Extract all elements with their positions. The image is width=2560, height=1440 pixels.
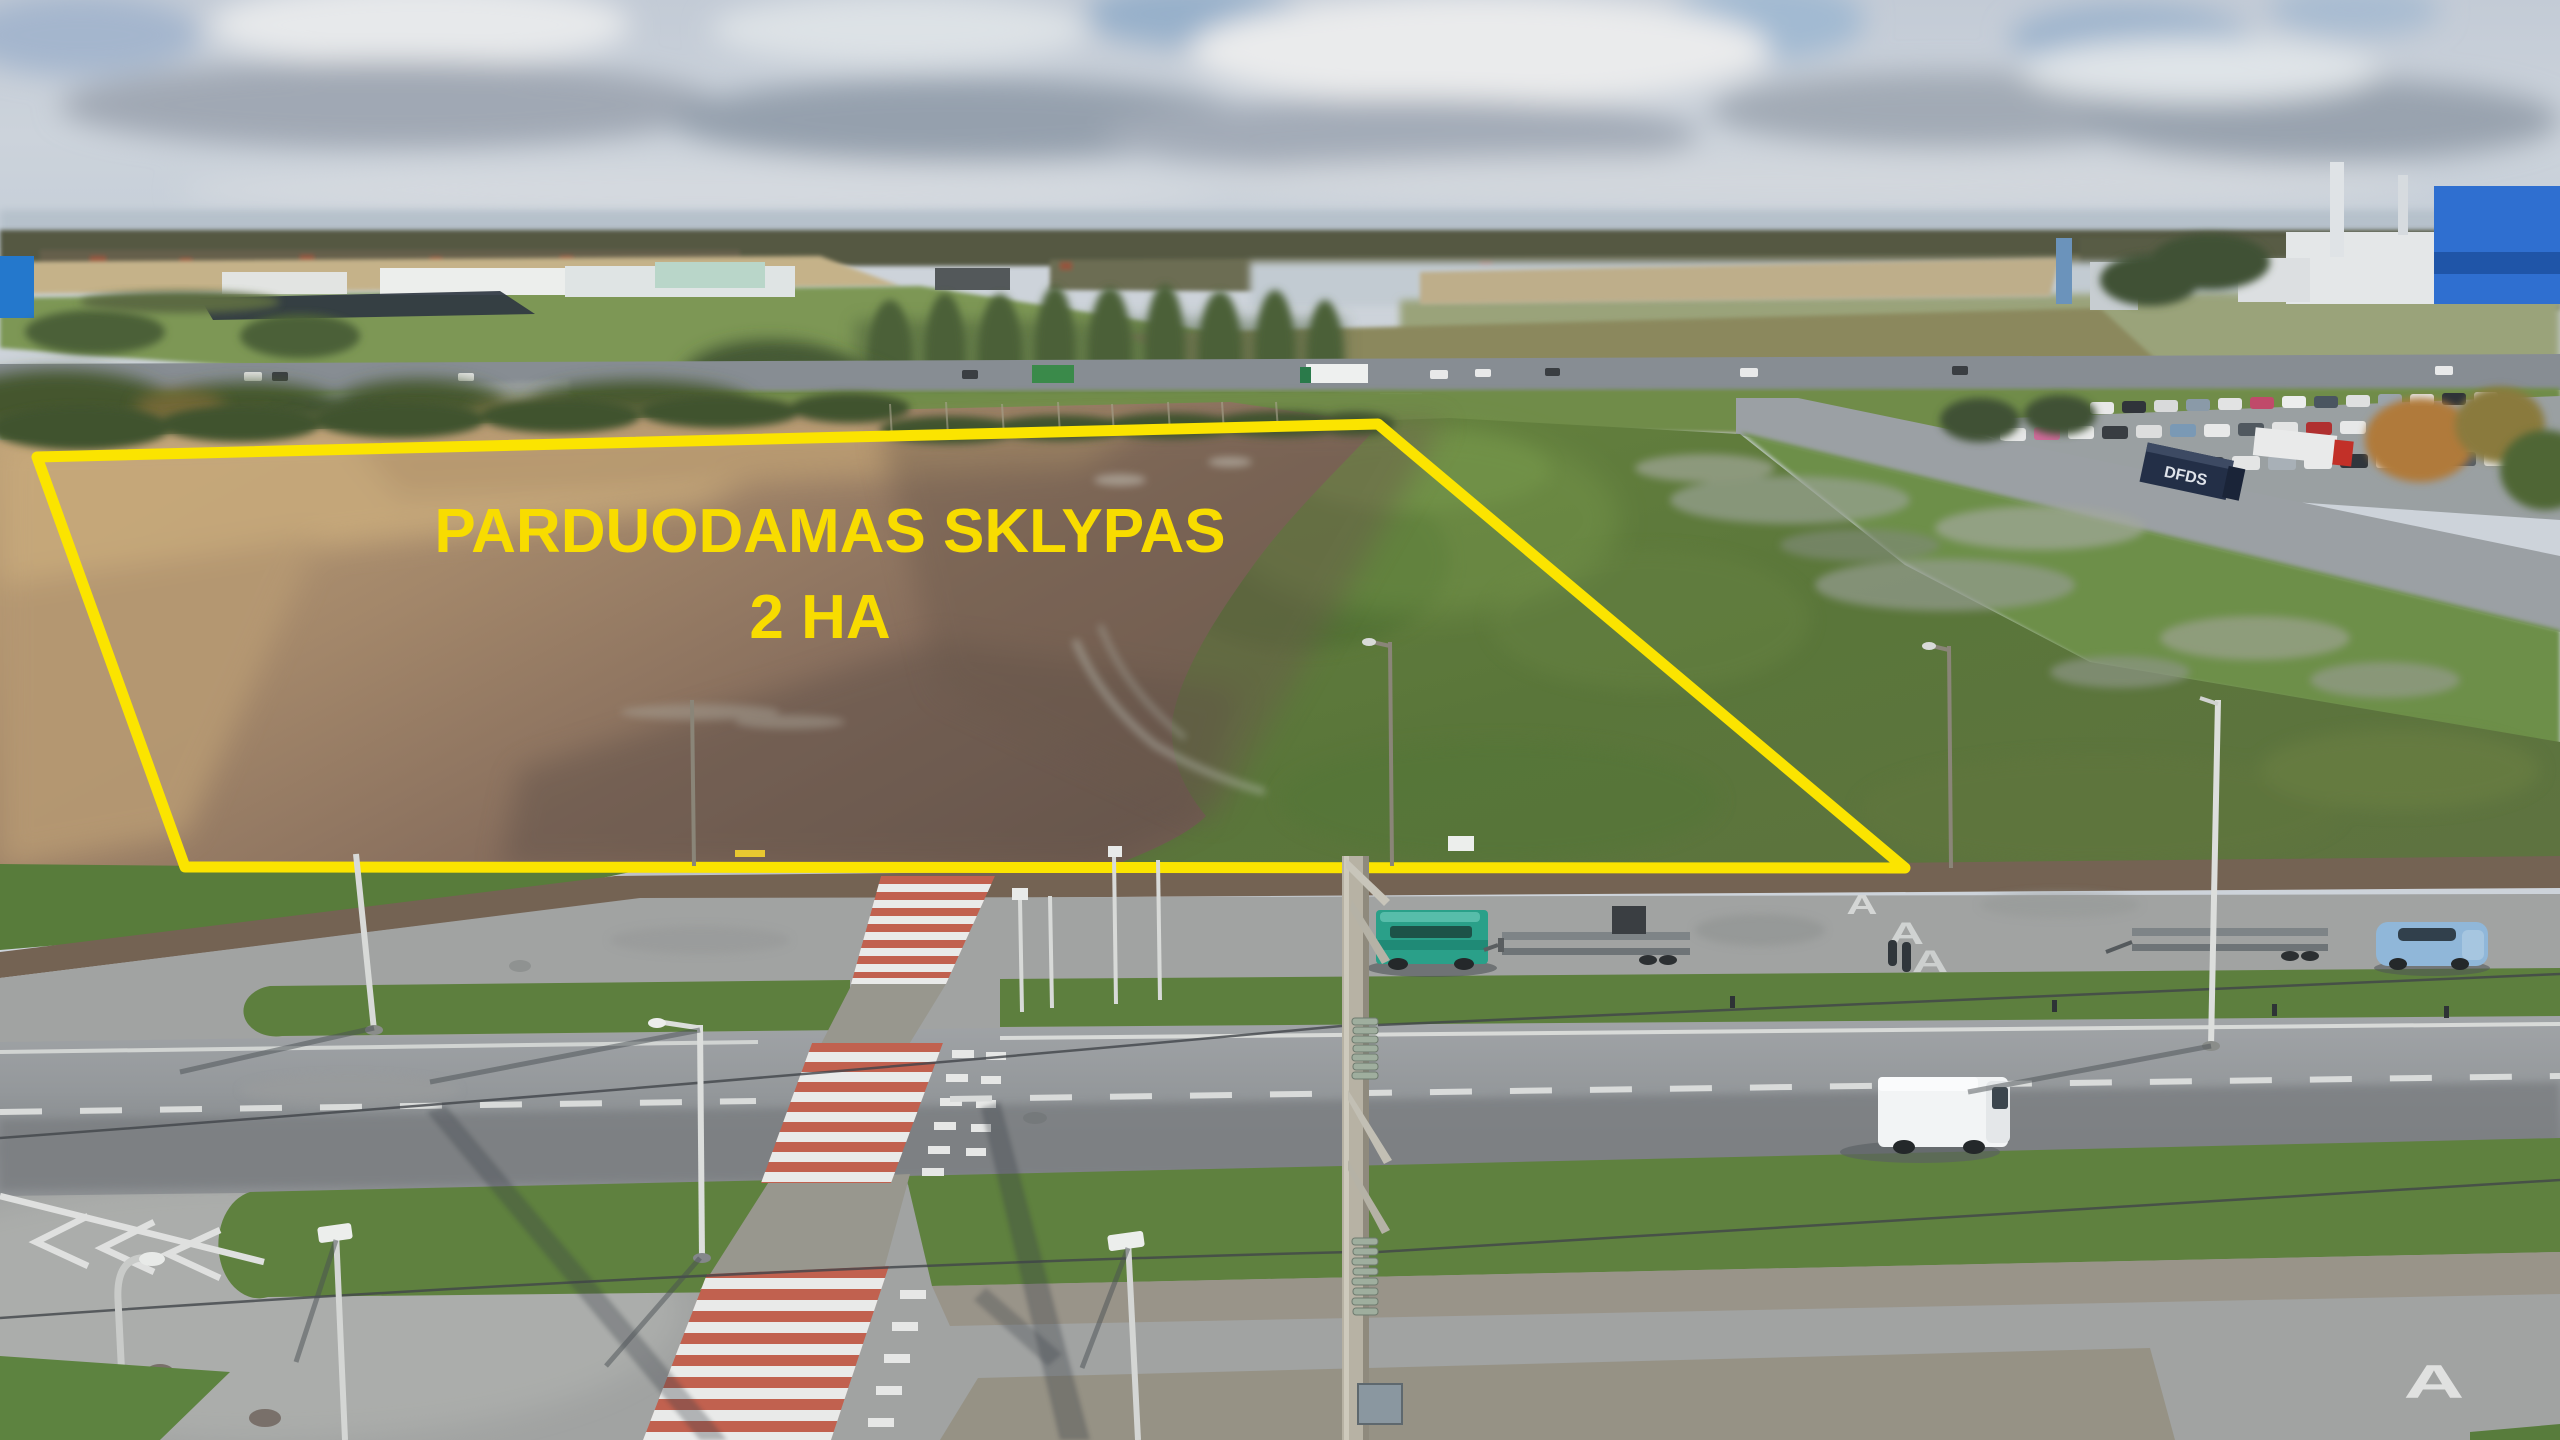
svg-text:A: A bbox=[1846, 889, 1877, 921]
svg-text:A: A bbox=[1912, 944, 1948, 979]
svg-text:2 HA: 2 HA bbox=[749, 583, 890, 652]
svg-text:A: A bbox=[2404, 1355, 2465, 1408]
svg-text:PARDUODAMAS SKLYPAS: PARDUODAMAS SKLYPAS bbox=[434, 497, 1225, 566]
